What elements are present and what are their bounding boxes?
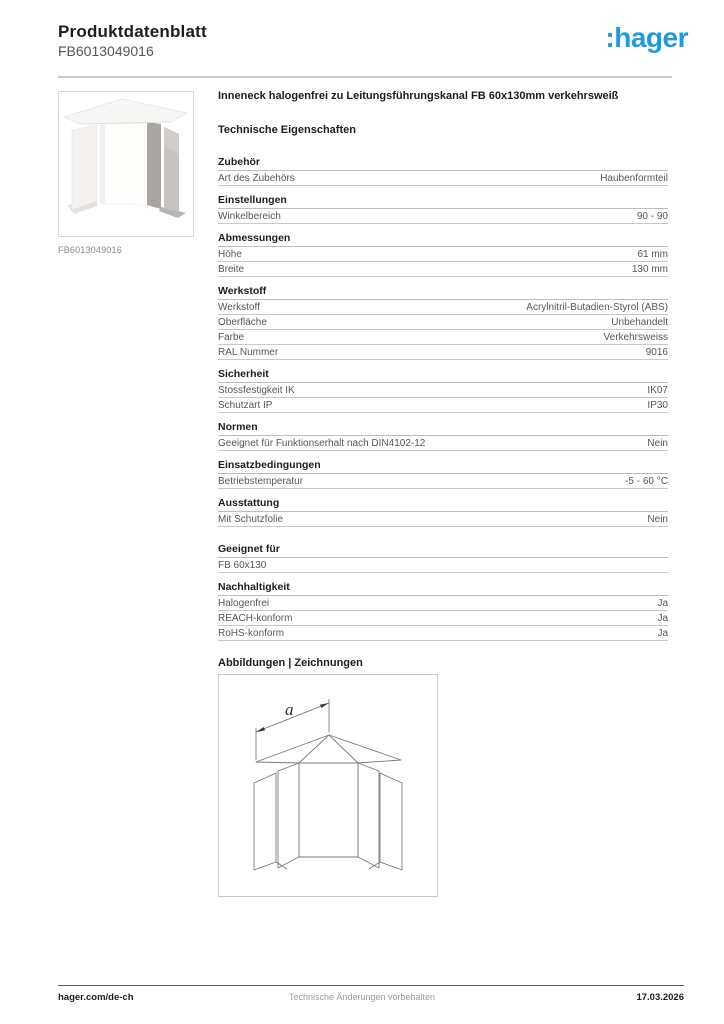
spec-section: NormenGeeignet für Funktionserhalt nach … [218, 422, 668, 451]
spec-value: IP30 [647, 400, 668, 411]
spec-row: Stossfestigkeit IKIK07 [218, 383, 668, 398]
spec-value: 130 mm [632, 264, 668, 275]
footer-divider [58, 985, 684, 986]
spec-row: FarbeVerkehrsweiss [218, 330, 668, 345]
tech-properties-heading: Technische Eigenschaften [218, 124, 668, 137]
section-heading: Zubehör [218, 157, 668, 171]
spec-value: Haubenformteil [600, 173, 668, 184]
spec-value: 90 - 90 [637, 211, 668, 222]
section-heading: Ausstattung [218, 498, 668, 512]
spec-label: Geeignet für Funktionserhalt nach DIN410… [218, 438, 425, 449]
section-heading: Sicherheit [218, 369, 668, 383]
spec-label: REACH-konform [218, 613, 292, 624]
spec-value: Acrylnitril-Butadien-Styrol (ABS) [526, 302, 668, 313]
spec-row: RAL Nummer9016 [218, 345, 668, 360]
spec-row: FB 60x130 [218, 558, 668, 573]
spec-row: Betriebstemperatur-5 - 60 °C [218, 474, 668, 489]
spec-label: Art des Zubehörs [218, 173, 295, 184]
spec-value: Ja [657, 628, 668, 639]
hager-logo: :hager [605, 24, 688, 52]
spec-section: AbmessungenHöhe61 mmBreite130 mm [218, 233, 668, 277]
spec-value: Verkehrsweiss [604, 332, 668, 343]
section-heading: Geeignet für [218, 544, 668, 558]
spec-label: Halogenfrei [218, 598, 269, 609]
spec-row: Art des ZubehörsHaubenformteil [218, 171, 668, 186]
footer-date: 17.03.2026 [636, 992, 684, 1003]
spec-label: Winkelbereich [218, 211, 281, 222]
footer-url[interactable]: hager.com/de-ch [58, 992, 134, 1003]
page-header: Produktdatenblatt FB6013049016 :hager [58, 22, 688, 60]
spec-label: RoHS-konform [218, 628, 284, 639]
section-heading: Werkstoff [218, 286, 668, 300]
spec-label: FB 60x130 [218, 560, 266, 571]
product-photo-illustration [59, 92, 193, 236]
spec-label: RAL Nummer [218, 347, 278, 358]
spec-row: Breite130 mm [218, 262, 668, 277]
spec-row: OberflächeUnbehandelt [218, 315, 668, 330]
spec-row: Schutzart IPIP30 [218, 398, 668, 413]
spec-section: AusstattungMit SchutzfolieNein [218, 498, 668, 527]
spec-row: WerkstoffAcrylnitril-Butadien-Styrol (AB… [218, 300, 668, 315]
technical-drawing-illustration: a [219, 675, 437, 896]
section-heading: Normen [218, 422, 668, 436]
spec-label: Stossfestigkeit IK [218, 385, 295, 396]
spec-section: EinstellungenWinkelbereich90 - 90 [218, 195, 668, 224]
spec-label: Betriebstemperatur [218, 476, 303, 487]
product-number: FB6013049016 [58, 43, 688, 60]
spec-label: Breite [218, 264, 244, 275]
spec-value: Nein [647, 514, 668, 525]
spec-value: 61 mm [637, 249, 668, 260]
spec-section: NachhaltigkeitHalogenfreiJaREACH-konform… [218, 582, 668, 641]
spec-row: HalogenfreiJa [218, 596, 668, 611]
spec-label: Schutzart IP [218, 400, 272, 411]
spec-sections: ZubehörArt des ZubehörsHaubenformteilEin… [218, 157, 668, 650]
spec-row: Höhe61 mm [218, 247, 668, 262]
spec-label: Farbe [218, 332, 244, 343]
dimension-label: a [285, 700, 294, 719]
spec-section: Geeignet fürFB 60x130 [218, 544, 668, 573]
product-image-column: FB6013049016 [58, 91, 208, 255]
spec-value: 9016 [646, 347, 668, 358]
product-photo [58, 91, 194, 237]
spec-value: Ja [657, 598, 668, 609]
spec-section: ZubehörArt des ZubehörsHaubenformteil [218, 157, 668, 186]
spec-row: RoHS-konformJa [218, 626, 668, 641]
spec-label: Höhe [218, 249, 242, 260]
technical-drawing: a [218, 674, 438, 897]
datasheet-page: Produktdatenblatt FB6013049016 :hager FB… [0, 0, 724, 1024]
product-image-caption: FB6013049016 [58, 245, 208, 255]
page-title: Produktdatenblatt [58, 22, 688, 41]
spec-section: EinsatzbedingungenBetriebstemperatur-5 -… [218, 460, 668, 489]
spec-value: Nein [647, 438, 668, 449]
section-heading: Einstellungen [218, 195, 668, 209]
spec-section: SicherheitStossfestigkeit IKIK07Schutzar… [218, 369, 668, 413]
header-divider [58, 76, 672, 78]
drawings-heading: Abbildungen | Zeichnungen [218, 657, 668, 670]
spec-row: Mit SchutzfolieNein [218, 512, 668, 527]
spec-value: Unbehandelt [611, 317, 668, 328]
product-title: Inneneck halogenfrei zu Leitungsführungs… [218, 90, 668, 103]
section-heading: Nachhaltigkeit [218, 582, 668, 596]
spec-value: IK07 [647, 385, 668, 396]
spec-row: Winkelbereich90 - 90 [218, 209, 668, 224]
product-details-column: Inneneck halogenfrei zu Leitungsführungs… [218, 90, 668, 897]
spec-label: Oberfläche [218, 317, 267, 328]
spec-label: Werkstoff [218, 302, 260, 313]
spec-value: -5 - 60 °C [625, 476, 668, 487]
section-heading: Abmessungen [218, 233, 668, 247]
spec-label: Mit Schutzfolie [218, 514, 283, 525]
spec-row: Geeignet für Funktionserhalt nach DIN410… [218, 436, 668, 451]
page-footer: Technische Änderungen vorbehalten hager.… [0, 992, 724, 1012]
spec-row: REACH-konformJa [218, 611, 668, 626]
section-heading: Einsatzbedingungen [218, 460, 668, 474]
spec-section: WerkstoffWerkstoffAcrylnitril-Butadien-S… [218, 286, 668, 360]
spec-value: Ja [657, 613, 668, 624]
